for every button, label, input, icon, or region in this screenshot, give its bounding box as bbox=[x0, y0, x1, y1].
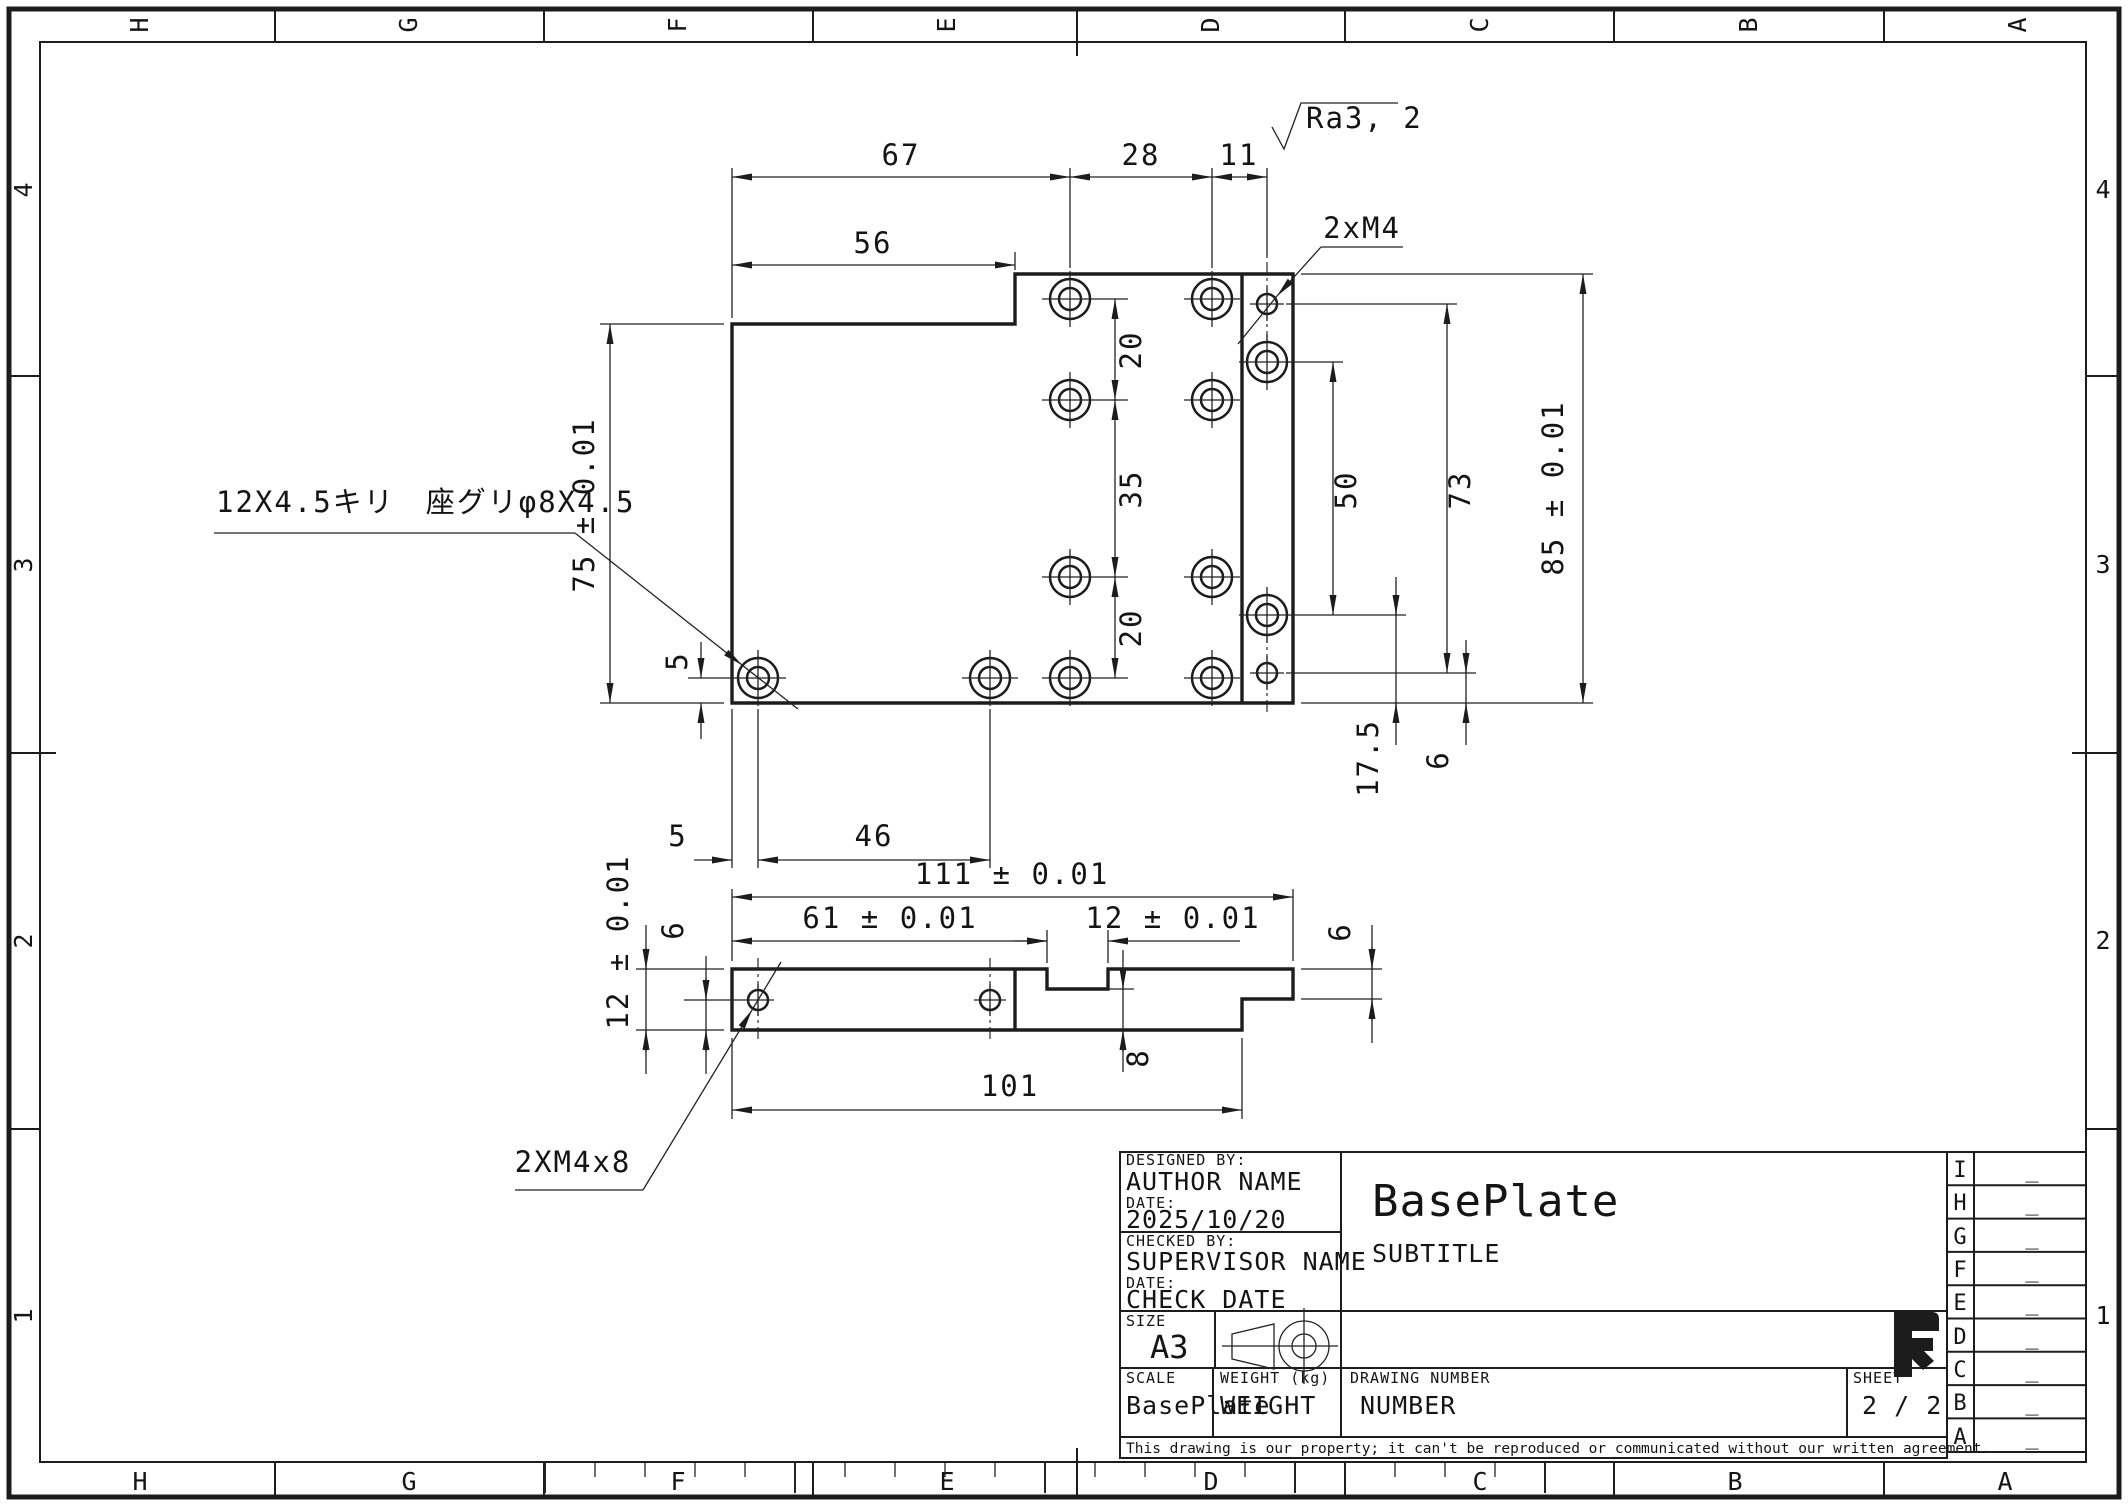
drawing-sheet: H G F E D C B A H G F E D C B A 4 3 2 1 … bbox=[0, 0, 2128, 1506]
rev-row-letter: D bbox=[1953, 1325, 1966, 1350]
dim-6: 6 bbox=[1421, 750, 1455, 769]
rev-row-value: _ bbox=[2025, 1291, 2039, 1316]
rev-row-value: _ bbox=[2025, 1325, 2039, 1350]
rev-row-letter: G bbox=[1953, 1225, 1966, 1250]
border-bottom-d: D bbox=[1203, 1467, 1218, 1496]
dim-67: 67 bbox=[882, 138, 921, 172]
border-zone-letters-top: H G F E D C B A bbox=[125, 17, 2032, 32]
counterbore-leader: 12X4.5キリ 座グリφ8X4.5 bbox=[214, 485, 798, 709]
counterbore-holes bbox=[730, 271, 1295, 706]
dim-12-notch: 12 ± 0.01 bbox=[1085, 901, 1260, 935]
drawing-title: BasePlate bbox=[1372, 1176, 1619, 1227]
dim-20a: 20 bbox=[1114, 331, 1148, 370]
dim-6-left: 6 bbox=[656, 920, 690, 939]
border-top-d: D bbox=[1196, 17, 1225, 32]
m4x8-leader: 2XM4x8 bbox=[515, 962, 781, 1190]
border-top-b: B bbox=[1734, 17, 1763, 32]
sheet-value: 2 / 2 bbox=[1862, 1391, 1942, 1420]
border-bottom-c: C bbox=[1472, 1467, 1487, 1496]
dim-56: 56 bbox=[854, 226, 893, 260]
border-bottom-f: F bbox=[670, 1467, 685, 1496]
weight-label: WEIGHT (kg) bbox=[1220, 1369, 1330, 1387]
rev-row-value: _ bbox=[2025, 1258, 2039, 1283]
dim-17-5: 17.5 bbox=[1351, 719, 1385, 797]
border-left-4: 4 bbox=[9, 182, 38, 197]
dim-85: 85 ± 0.01 bbox=[1536, 400, 1570, 575]
surface-finish-symbol: Ra3, 2 bbox=[1272, 101, 1423, 149]
border-bottom-h: H bbox=[132, 1467, 147, 1496]
border-top-a: A bbox=[2003, 17, 2032, 32]
counterbore-note: 12X4.5キリ 座グリφ8X4.5 bbox=[216, 485, 636, 519]
rev-row-value: _ bbox=[2025, 1158, 2039, 1183]
rev-row-letter: C bbox=[1953, 1358, 1966, 1383]
rev-row-value: _ bbox=[2025, 1358, 2039, 1383]
rev-row-value: _ bbox=[2025, 1391, 2039, 1416]
date1-value: 2025/10/20 bbox=[1126, 1205, 1287, 1234]
border-right-2: 2 bbox=[2095, 926, 2110, 955]
border-top-g: G bbox=[394, 17, 423, 32]
profile-outline bbox=[732, 969, 1293, 1030]
disclaimer-text: This drawing is our property; it can't b… bbox=[1126, 1441, 1990, 1457]
border-zone-letters-bottom: H G F E D C B A bbox=[132, 1467, 2012, 1496]
border-right-4: 4 bbox=[2095, 175, 2110, 204]
border-bottom-g: G bbox=[401, 1467, 416, 1496]
dim-12-height: 12 ± 0.01 bbox=[601, 854, 635, 1029]
side-view: 111 ± 0.01 61 ± 0.01 12 ± 0.01 12 ± 0.01… bbox=[515, 854, 1382, 1190]
dim-5v: 5 bbox=[660, 651, 694, 670]
border-bottom-e: E bbox=[939, 1467, 954, 1496]
rev-row-letter: E bbox=[1953, 1291, 1966, 1316]
border-top-c: C bbox=[1465, 17, 1494, 32]
m4x8-label: 2XM4x8 bbox=[515, 1145, 632, 1179]
drawing-number-value: NUMBER bbox=[1360, 1391, 1456, 1420]
top-view: 67 28 11 56 75 ± 0.01 85 ± 0.01 73 50 20… bbox=[214, 138, 1593, 868]
designed-by-value: AUTHOR NAME bbox=[1126, 1167, 1303, 1196]
border-left-2: 2 bbox=[9, 933, 38, 948]
dim-50: 50 bbox=[1329, 471, 1363, 510]
revision-table: I _ H _ G _ F _ E _ D _ C _ B _ A _ bbox=[1947, 1152, 2086, 1452]
rev-row-value: _ bbox=[2025, 1225, 2039, 1250]
rev-row-letter: I bbox=[1953, 1158, 1966, 1183]
border-bottom-a: A bbox=[1997, 1467, 2012, 1496]
top-view-dimensions: 67 28 11 56 75 ± 0.01 85 ± 0.01 73 50 20… bbox=[567, 138, 1593, 868]
size-value: A3 bbox=[1150, 1328, 1189, 1366]
border-top-e: E bbox=[932, 17, 961, 32]
border-top-h: H bbox=[125, 17, 154, 32]
dim-73: 73 bbox=[1443, 471, 1477, 510]
rev-row-value: _ bbox=[2025, 1425, 2039, 1450]
date2-value: CHECK DATE bbox=[1126, 1285, 1287, 1314]
m4-tapped-holes bbox=[1250, 262, 1284, 715]
dim-28: 28 bbox=[1122, 138, 1161, 172]
rev-row-letter: H bbox=[1953, 1191, 1966, 1216]
rev-row-letter: F bbox=[1953, 1258, 1966, 1283]
dim-111: 111 ± 0.01 bbox=[915, 857, 1110, 891]
m4-label: 2xM4 bbox=[1323, 211, 1401, 245]
checked-by-value: SUPERVISOR NAME bbox=[1126, 1247, 1367, 1276]
dim-101: 101 bbox=[981, 1069, 1039, 1103]
dim-20b: 20 bbox=[1114, 609, 1148, 648]
surface-finish-value: Ra3, 2 bbox=[1306, 101, 1423, 135]
sheet-border: H G F E D C B A H G F E D C B A 4 3 2 1 … bbox=[9, 9, 2119, 1497]
plate-outline bbox=[732, 274, 1293, 703]
side-view-dimensions: 111 ± 0.01 61 ± 0.01 12 ± 0.01 12 ± 0.01… bbox=[601, 854, 1382, 1119]
border-left-1: 1 bbox=[9, 1308, 38, 1323]
dim-8: 8 bbox=[1121, 1048, 1155, 1067]
rev-row-letter: A bbox=[1953, 1425, 1966, 1450]
dim-46: 46 bbox=[855, 819, 894, 853]
weight-value: WEIGHT bbox=[1220, 1391, 1316, 1420]
m4-leader: 2xM4 bbox=[1238, 211, 1403, 344]
drawing-subtitle: SUBTITLE bbox=[1372, 1239, 1500, 1268]
reference-ruler bbox=[545, 1462, 1545, 1493]
border-bottom-b: B bbox=[1727, 1467, 1742, 1496]
scale-label: SCALE bbox=[1126, 1369, 1176, 1387]
rev-row-letter: B bbox=[1953, 1391, 1966, 1416]
border-right-3: 3 bbox=[2095, 550, 2110, 579]
border-right-1: 1 bbox=[2095, 1301, 2110, 1330]
rev-row-value: _ bbox=[2025, 1191, 2039, 1216]
drawing-canvas: H G F E D C B A H G F E D C B A 4 3 2 1 … bbox=[0, 0, 2128, 1506]
dim-6-right: 6 bbox=[1323, 922, 1357, 941]
title-block: DESIGNED BY: AUTHOR NAME DATE: 2025/10/2… bbox=[1120, 1151, 1990, 1458]
dim-5h: 5 bbox=[668, 819, 687, 853]
drawing-number-label: DRAWING NUMBER bbox=[1350, 1369, 1490, 1387]
border-top-f: F bbox=[663, 17, 692, 32]
border-left-3: 3 bbox=[9, 557, 38, 572]
dim-11: 11 bbox=[1220, 138, 1259, 172]
dim-35: 35 bbox=[1114, 470, 1148, 509]
border-zone-numbers: 4 3 2 1 4 3 2 1 bbox=[9, 175, 2111, 1330]
dim-61: 61 ± 0.01 bbox=[802, 901, 977, 935]
